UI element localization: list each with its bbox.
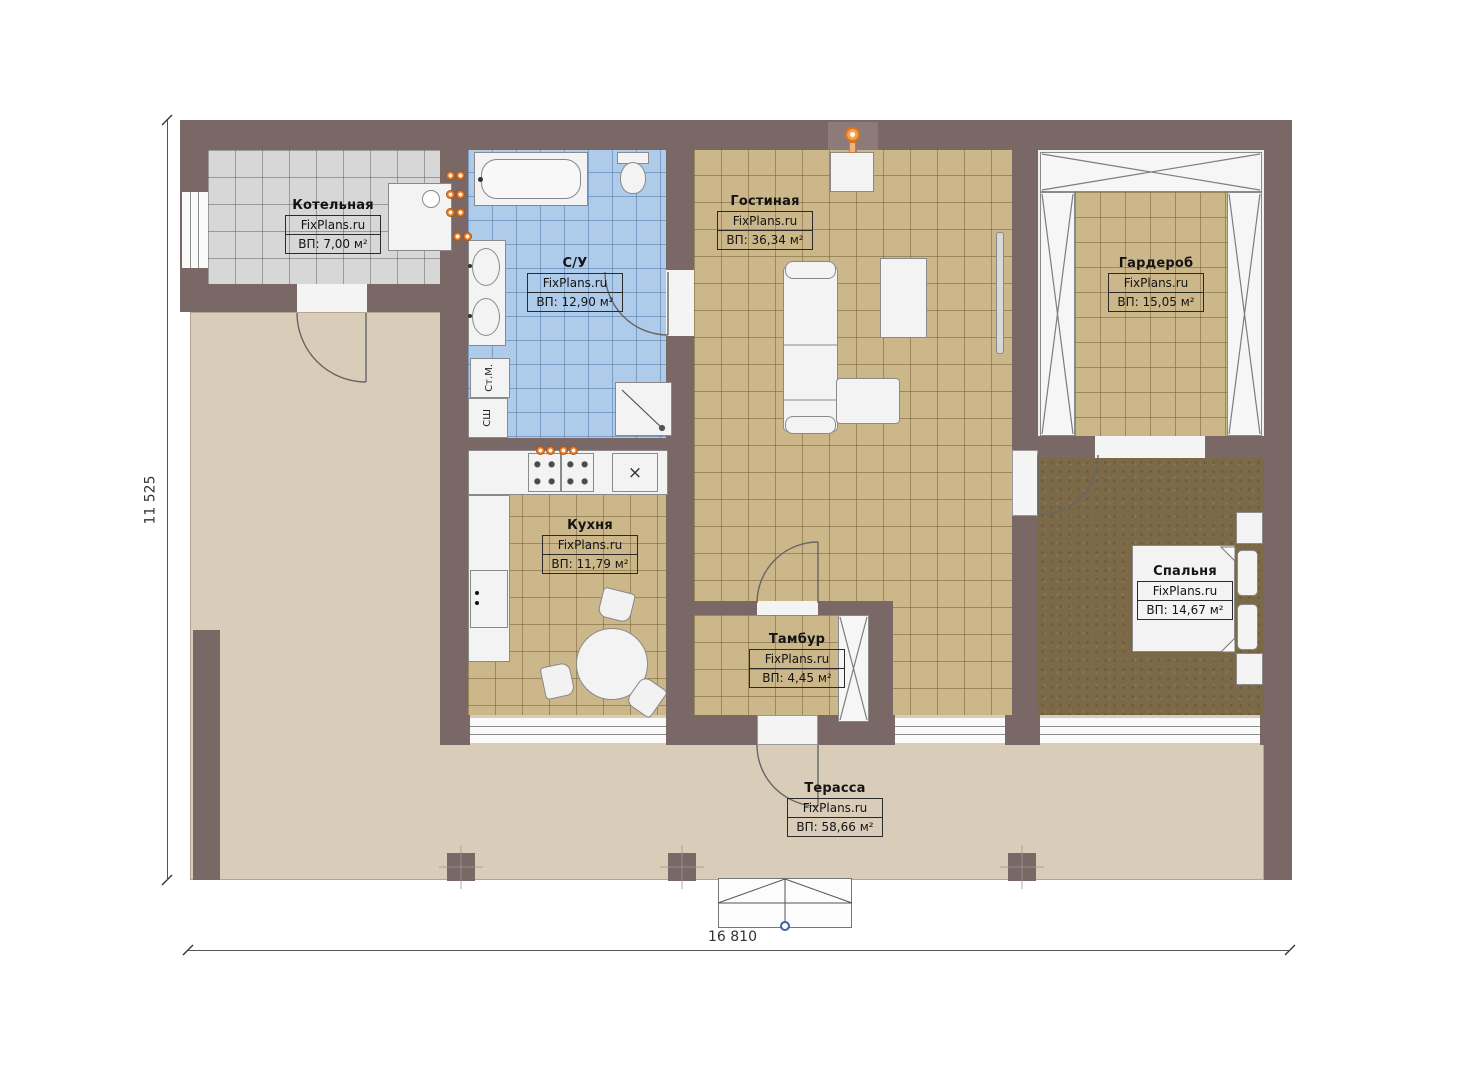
wall-wardrobe-bedroom-right xyxy=(1205,436,1264,458)
watermark: FixPlans.ru xyxy=(788,799,882,817)
socket-icon xyxy=(559,446,578,455)
bedroom-door-opening xyxy=(1012,450,1038,516)
bathtub-basin xyxy=(481,159,581,199)
coffee-table xyxy=(880,258,927,338)
fridge xyxy=(470,570,508,628)
washing-machine-label: Ст.М. xyxy=(485,364,495,392)
nightstand xyxy=(1236,653,1263,685)
toilet-bowl xyxy=(620,162,646,194)
washing-machine: Ст.М. xyxy=(470,358,510,398)
wall-vestibule-top-left xyxy=(694,601,757,615)
room-title: Терасса xyxy=(787,781,883,796)
fireplace-flame-stem xyxy=(849,142,856,153)
room-title: Тамбур xyxy=(749,632,845,647)
room-label-boiler: Котельная FixPlans.ruВП: 7,00 м² xyxy=(285,198,381,254)
room-area: ВП: 12,90 м² xyxy=(528,292,622,311)
wall-bottom-d xyxy=(1260,715,1292,745)
bedroom-window xyxy=(1040,718,1260,743)
dimension-line-left xyxy=(167,120,168,880)
stove-burners-left xyxy=(528,453,561,492)
room-label-bathroom: С/У FixPlans.ruВП: 12,90 м² xyxy=(527,256,623,312)
room-area: ВП: 14,67 м² xyxy=(1138,600,1232,619)
room-title: Котельная xyxy=(285,198,381,213)
room-title: Гостиная xyxy=(717,194,813,209)
sink-basin xyxy=(472,298,500,336)
dimension-width: 16 810 xyxy=(708,929,757,945)
watermark: FixPlans.ru xyxy=(718,212,812,230)
fireplace-flame-icon xyxy=(845,127,860,142)
terrace-column xyxy=(1008,853,1036,881)
socket-icon xyxy=(446,208,465,217)
sink-faucet xyxy=(468,314,472,318)
bathtub-faucet xyxy=(478,177,483,182)
living-room-window xyxy=(895,718,1005,743)
sink-faucet xyxy=(468,264,472,268)
vestibule-terrace-door-opening xyxy=(757,715,818,745)
room-label-terrace: Терасса FixPlans.ruВП: 58,66 м² xyxy=(787,781,883,837)
wall-bottom-b xyxy=(666,715,757,745)
fridge-handle-dot xyxy=(475,591,479,595)
dimension-line-bottom xyxy=(188,950,1290,951)
terrace-column xyxy=(668,853,696,881)
room-area: ВП: 15,05 м² xyxy=(1109,292,1203,311)
room-title: Спальня xyxy=(1137,564,1233,579)
sofa-armrest-top xyxy=(785,261,836,279)
wall-boiler-bottom-left xyxy=(180,284,297,312)
wardrobe-floor xyxy=(1075,192,1227,436)
boiler-window xyxy=(182,192,208,268)
wall-bottom-c2 xyxy=(1005,715,1040,745)
stove-burners-right xyxy=(561,453,594,492)
watermark: FixPlans.ru xyxy=(1109,274,1203,292)
room-title: С/У xyxy=(527,256,623,271)
room-label-wardrobe: Гардероб FixPlans.ruВП: 15,05 м² xyxy=(1108,256,1204,312)
socket-icon xyxy=(536,446,555,455)
wall-living-wardrobe-upper xyxy=(1012,120,1038,450)
sofa-armrest-bottom xyxy=(785,416,836,434)
terrace-side-wall xyxy=(193,630,220,880)
wardrobe-bedroom-passage xyxy=(1095,436,1205,458)
socket-icon xyxy=(446,171,465,180)
pillow xyxy=(1237,550,1258,596)
bathroom-door-opening xyxy=(666,270,694,336)
wall-top xyxy=(180,120,1292,150)
shower-tray xyxy=(615,382,672,436)
room-title: Гардероб xyxy=(1108,256,1204,271)
wall-living-wardrobe-lower xyxy=(1012,516,1038,745)
kitchen-window xyxy=(470,718,666,743)
pillow xyxy=(1237,604,1258,650)
drying-cabinet: СШ xyxy=(468,398,508,438)
watermark: FixPlans.ru xyxy=(1138,582,1232,600)
floor-plan: Ст.М. СШ × Котельная Fix xyxy=(0,0,1474,1080)
wall-bath-living-upper xyxy=(666,148,694,270)
sink-basin xyxy=(472,248,500,286)
entrance-steps xyxy=(718,878,852,928)
room-area: ВП: 58,66 м² xyxy=(788,817,882,836)
room-area: ВП: 4,45 м² xyxy=(750,668,844,687)
bathtub xyxy=(474,152,588,206)
wardrobe-closet-left xyxy=(1040,192,1075,436)
tv-panel xyxy=(996,232,1004,354)
kitchen-sink: × xyxy=(612,453,658,492)
drying-cabinet-label: СШ xyxy=(483,409,493,427)
wardrobe-closet-right xyxy=(1227,192,1262,436)
wall-bottom-a xyxy=(440,715,470,745)
wardrobe-closet-top xyxy=(1040,152,1262,192)
room-area: ВП: 11,79 м² xyxy=(543,554,637,573)
dimension-height: 11 525 xyxy=(143,476,159,525)
vestibule-living-door-opening xyxy=(757,601,818,615)
fireplace-hearth xyxy=(830,152,874,192)
socket-icon xyxy=(446,190,465,199)
room-label-vestibule: Тамбур FixPlans.ruВП: 4,45 м² xyxy=(749,632,845,688)
watermark: FixPlans.ru xyxy=(750,650,844,668)
watermark: FixPlans.ru xyxy=(528,274,622,292)
socket-icon xyxy=(453,232,472,241)
watermark: FixPlans.ru xyxy=(543,536,637,554)
wall-right xyxy=(1264,120,1292,880)
boiler-door-opening xyxy=(297,284,367,312)
room-area: ВП: 36,34 м² xyxy=(718,230,812,249)
room-title: Кухня xyxy=(542,518,638,533)
room-area: ВП: 7,00 м² xyxy=(286,234,380,253)
room-label-living: Гостиная FixPlans.ruВП: 36,34 м² xyxy=(717,194,813,250)
wall-wardrobe-bedroom-left xyxy=(1038,436,1095,458)
fridge-handle-dot xyxy=(475,601,479,605)
nightstand xyxy=(1236,512,1263,544)
watermark: FixPlans.ru xyxy=(286,216,380,234)
terrace-column xyxy=(447,853,475,881)
boiler-unit xyxy=(388,183,452,251)
room-label-kitchen: Кухня FixPlans.ruВП: 11,79 м² xyxy=(542,518,638,574)
boiler-tank xyxy=(422,190,440,208)
sofa-back xyxy=(783,266,838,432)
room-label-bedroom: Спальня FixPlans.ruВП: 14,67 м² xyxy=(1137,564,1233,620)
sofa-seat xyxy=(836,378,900,424)
